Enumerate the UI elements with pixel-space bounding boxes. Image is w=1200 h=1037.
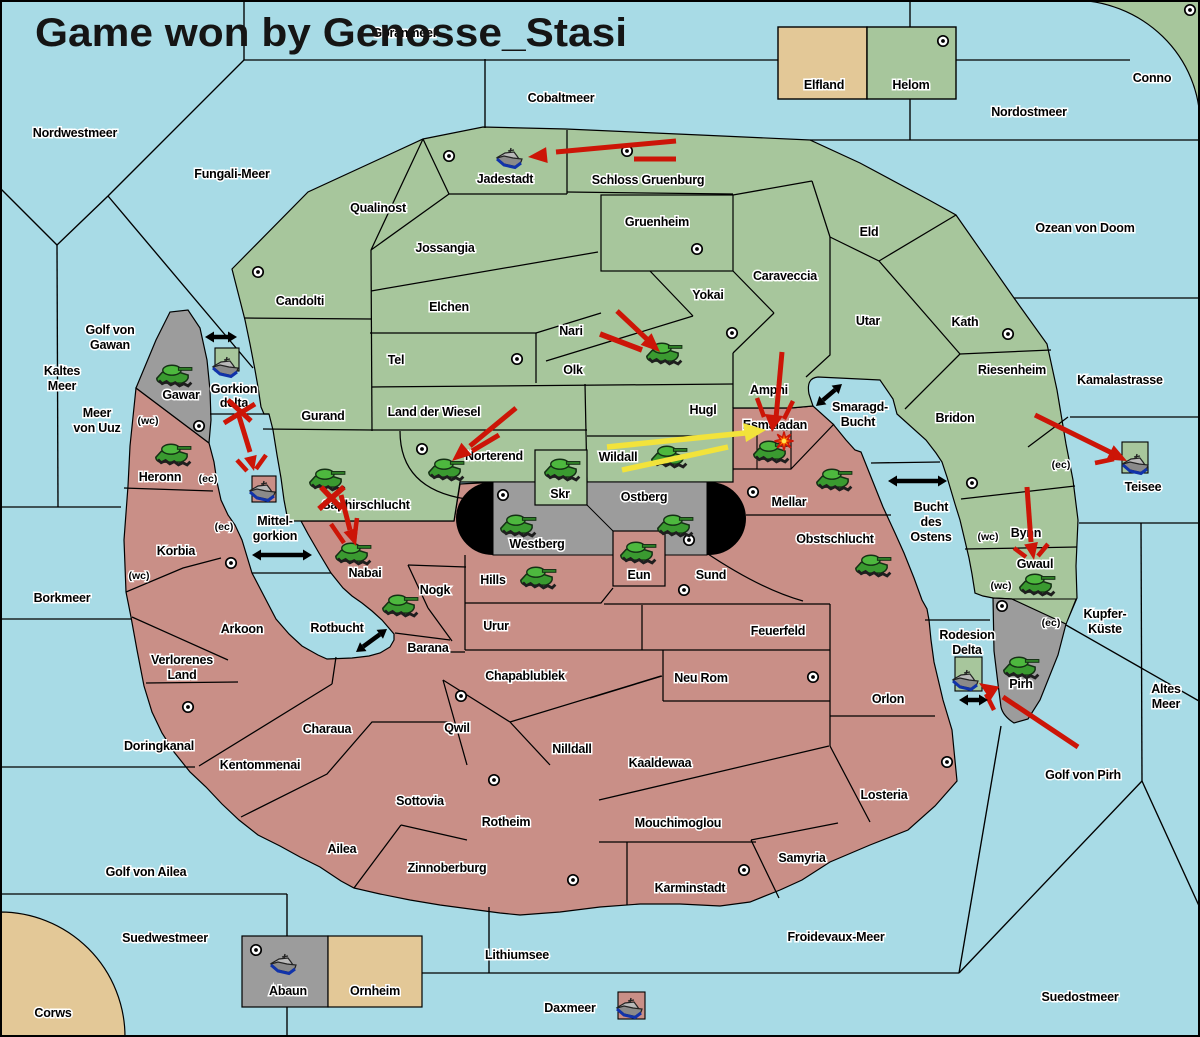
- svg-text:(ec): (ec): [1052, 459, 1071, 471]
- svg-text:von Uuz: von Uuz: [73, 421, 120, 435]
- svg-text:Mouchimoglou: Mouchimoglou: [635, 816, 721, 830]
- svg-text:Golf von Pirh: Golf von Pirh: [1045, 768, 1121, 782]
- svg-text:Nordostmeer: Nordostmeer: [991, 105, 1067, 119]
- svg-text:Tel: Tel: [388, 353, 405, 367]
- svg-text:Verlorenes: Verlorenes: [151, 653, 213, 667]
- svg-text:Neu Rom: Neu Rom: [674, 671, 728, 685]
- svg-text:Smaragd-: Smaragd-: [832, 400, 888, 414]
- svg-text:Suedostmeer: Suedostmeer: [1042, 990, 1119, 1004]
- svg-text:Conno: Conno: [1133, 71, 1172, 85]
- svg-text:Rodesion: Rodesion: [939, 628, 994, 642]
- svg-text:Kupfer-: Kupfer-: [1083, 607, 1126, 621]
- svg-text:Feuerfeld: Feuerfeld: [751, 624, 805, 638]
- svg-text:Gwaul: Gwaul: [1017, 557, 1054, 571]
- svg-text:Ornheim: Ornheim: [350, 984, 400, 998]
- svg-text:Land der Wiesel: Land der Wiesel: [388, 405, 481, 419]
- svg-text:Nabai: Nabai: [348, 566, 381, 580]
- svg-text:Losteria: Losteria: [860, 788, 908, 802]
- svg-text:Froidevaux-Meer: Froidevaux-Meer: [787, 930, 884, 944]
- svg-text:Kamalastrasse: Kamalastrasse: [1077, 373, 1163, 387]
- svg-text:Altes: Altes: [1151, 682, 1181, 696]
- svg-text:Borkmeer: Borkmeer: [34, 591, 91, 605]
- svg-text:Jadestadt: Jadestadt: [477, 172, 535, 186]
- svg-text:Nari: Nari: [559, 324, 583, 338]
- svg-text:Kaaldewaa: Kaaldewaa: [629, 756, 693, 770]
- svg-text:Game won by Genosse_Stasi: Game won by Genosse_Stasi: [35, 11, 627, 55]
- svg-text:Doringkanal: Doringkanal: [124, 739, 194, 753]
- svg-text:Karminstadt: Karminstadt: [655, 881, 727, 895]
- svg-text:Nogk: Nogk: [420, 583, 451, 597]
- svg-text:Samyria: Samyria: [778, 851, 826, 865]
- svg-text:Wildall: Wildall: [599, 450, 638, 464]
- svg-text:Urur: Urur: [483, 619, 509, 633]
- svg-text:Hills: Hills: [480, 573, 506, 587]
- svg-text:Ailea: Ailea: [328, 842, 358, 856]
- svg-text:Korbia: Korbia: [157, 544, 197, 558]
- svg-text:(wc): (wc): [978, 531, 999, 543]
- svg-text:Sottovia: Sottovia: [396, 794, 445, 808]
- svg-text:Amphi: Amphi: [750, 383, 788, 397]
- svg-text:Rotheim: Rotheim: [482, 815, 531, 829]
- svg-text:(ec): (ec): [199, 473, 218, 485]
- svg-text:Rotbucht: Rotbucht: [310, 621, 364, 635]
- svg-text:Heronn: Heronn: [139, 470, 182, 484]
- svg-text:Bynn: Bynn: [1011, 526, 1041, 540]
- svg-text:Olk: Olk: [563, 363, 583, 377]
- svg-text:Riesenheim: Riesenheim: [978, 363, 1046, 377]
- svg-text:Golf von: Golf von: [85, 323, 134, 337]
- svg-text:Obstschlucht: Obstschlucht: [796, 532, 875, 546]
- svg-text:Mittel-: Mittel-: [257, 514, 292, 528]
- svg-text:Gorkion: Gorkion: [211, 382, 258, 396]
- svg-text:des: des: [921, 515, 942, 529]
- svg-text:Qwil: Qwil: [444, 721, 470, 735]
- svg-text:Orlon: Orlon: [872, 692, 904, 706]
- svg-text:Gawan: Gawan: [90, 338, 130, 352]
- svg-text:Chapablublek: Chapablublek: [485, 669, 565, 683]
- svg-text:Bridon: Bridon: [935, 411, 974, 425]
- svg-text:Golf von Ailea: Golf von Ailea: [106, 865, 188, 879]
- svg-text:Daxmeer: Daxmeer: [544, 1001, 596, 1015]
- svg-text:(ec): (ec): [215, 521, 234, 533]
- svg-text:Nilldall: Nilldall: [552, 742, 591, 756]
- svg-text:Meer: Meer: [48, 379, 77, 393]
- svg-text:Sund: Sund: [696, 568, 726, 582]
- svg-text:Elchen: Elchen: [429, 300, 469, 314]
- svg-text:Pirh: Pirh: [1009, 677, 1033, 691]
- svg-text:Cobaltmeer: Cobaltmeer: [528, 91, 595, 105]
- svg-text:Delta: Delta: [952, 643, 983, 657]
- svg-text:Schloss Gruenburg: Schloss Gruenburg: [592, 173, 705, 187]
- svg-text:Mellar: Mellar: [772, 495, 807, 509]
- svg-text:Kath: Kath: [952, 315, 979, 329]
- svg-text:Caraveccia: Caraveccia: [753, 269, 818, 283]
- svg-text:Jossangia: Jossangia: [415, 241, 476, 255]
- svg-text:Kentommenai: Kentommenai: [220, 758, 300, 772]
- svg-text:Charaua: Charaua: [303, 722, 353, 736]
- svg-text:Land: Land: [167, 668, 196, 682]
- svg-text:Hugl: Hugl: [690, 403, 717, 417]
- svg-text:Gawar: Gawar: [162, 388, 200, 402]
- svg-text:Gurand: Gurand: [301, 409, 344, 423]
- svg-text:Ostens: Ostens: [910, 530, 951, 544]
- svg-text:Ozean von Doom: Ozean von Doom: [1035, 221, 1134, 235]
- svg-text:Nordwestmeer: Nordwestmeer: [33, 126, 118, 140]
- svg-text:Eun: Eun: [627, 568, 650, 582]
- svg-text:Kaltes: Kaltes: [44, 364, 81, 378]
- svg-text:Ostberg: Ostberg: [621, 490, 668, 504]
- svg-text:Elfland: Elfland: [804, 78, 844, 92]
- svg-text:Arkoon: Arkoon: [221, 622, 264, 636]
- svg-text:Meer: Meer: [83, 406, 112, 420]
- svg-text:Küste: Küste: [1088, 622, 1122, 636]
- svg-text:Suedwestmeer: Suedwestmeer: [122, 931, 208, 945]
- svg-text:Corws: Corws: [34, 1006, 71, 1020]
- svg-text:(wc): (wc): [138, 415, 159, 427]
- svg-text:Qualinost: Qualinost: [350, 201, 407, 215]
- svg-text:Yokai: Yokai: [692, 288, 723, 302]
- svg-text:Utar: Utar: [856, 314, 881, 328]
- svg-text:Westberg: Westberg: [509, 537, 564, 551]
- svg-text:Teisee: Teisee: [1125, 480, 1162, 494]
- svg-text:Gruenheim: Gruenheim: [625, 215, 689, 229]
- svg-text:Bucht: Bucht: [914, 500, 949, 514]
- svg-text:Skr: Skr: [550, 487, 570, 501]
- svg-text:Barana: Barana: [407, 641, 449, 655]
- svg-text:Zinnoberburg: Zinnoberburg: [408, 861, 487, 875]
- svg-text:Meer: Meer: [1152, 697, 1181, 711]
- svg-text:Helom: Helom: [892, 78, 929, 92]
- svg-text:gorkion: gorkion: [253, 529, 297, 543]
- svg-text:Lithiumsee: Lithiumsee: [485, 948, 549, 962]
- svg-text:Eld: Eld: [860, 225, 879, 239]
- svg-text:Abaun: Abaun: [269, 984, 307, 998]
- svg-text:Fungali-Meer: Fungali-Meer: [194, 167, 270, 181]
- svg-text:(wc): (wc): [129, 570, 150, 582]
- svg-text:(ec): (ec): [1042, 617, 1061, 629]
- svg-text:(wc): (wc): [991, 580, 1012, 592]
- svg-text:Candolti: Candolti: [276, 294, 324, 308]
- svg-text:Bucht: Bucht: [841, 415, 876, 429]
